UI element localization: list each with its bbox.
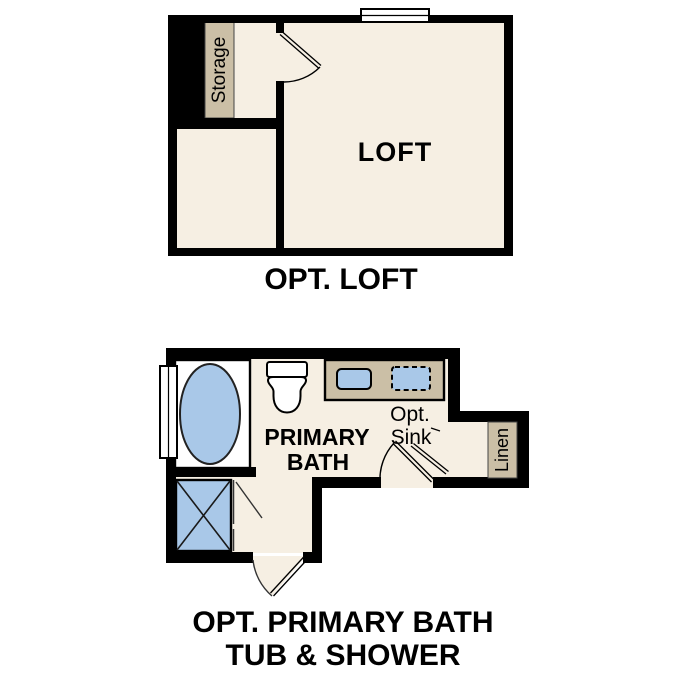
loft-plan: Storage LOFT OPT. LOFT xyxy=(168,9,513,296)
loft-wall-bottom xyxy=(168,248,513,256)
floorplan-page: Storage LOFT OPT. LOFT xyxy=(0,0,687,687)
bath-wall-right xyxy=(448,348,460,422)
tub-basin xyxy=(180,364,240,464)
storage-label: Storage xyxy=(209,37,230,104)
opt-sink-label-line1: Opt. xyxy=(390,403,430,426)
bath-wall-lower-vertical xyxy=(312,477,322,563)
bath-window xyxy=(160,366,177,458)
loft-interior-wall-horizontal xyxy=(168,118,284,129)
bath-wall-bottom-left xyxy=(166,552,253,563)
bath-room-label-line1: PRIMARY xyxy=(264,424,369,450)
bath-caption-line2: TUB & SHOWER xyxy=(226,639,461,672)
bath-caption-line1: OPT. PRIMARY BATH xyxy=(192,606,493,639)
loft-interior-wall-vertical xyxy=(276,81,284,256)
loft-wall-right xyxy=(504,15,513,256)
bath-wall-bottom-right xyxy=(312,477,381,488)
loft-wall-left xyxy=(168,15,177,256)
optional-sink xyxy=(392,367,430,390)
floorplan-svg: Storage LOFT OPT. LOFT xyxy=(0,0,687,687)
loft-caption: OPT. LOFT xyxy=(264,263,417,296)
tub xyxy=(175,360,250,468)
opt-sink-label-line2: Sink xyxy=(391,426,432,449)
toilet-tank xyxy=(267,362,307,377)
bath-plan: PRIMARY BATH Opt. Sink Linen OPT. PRIMAR… xyxy=(160,348,529,672)
loft-room-label: LOFT xyxy=(358,137,432,167)
doorway-opening-floor xyxy=(380,477,433,488)
hallway-wall-right xyxy=(517,411,529,488)
loft-wall-top xyxy=(168,15,513,23)
bath-wall-top xyxy=(166,348,460,359)
loft-window xyxy=(361,9,429,22)
linen-label: Linen xyxy=(492,428,512,472)
bath-room-label-line2: BATH xyxy=(287,449,349,475)
vanity xyxy=(325,360,444,400)
hallway-wall-top xyxy=(448,411,528,422)
sink xyxy=(337,369,371,389)
hallway-wall-bottom xyxy=(433,477,528,488)
